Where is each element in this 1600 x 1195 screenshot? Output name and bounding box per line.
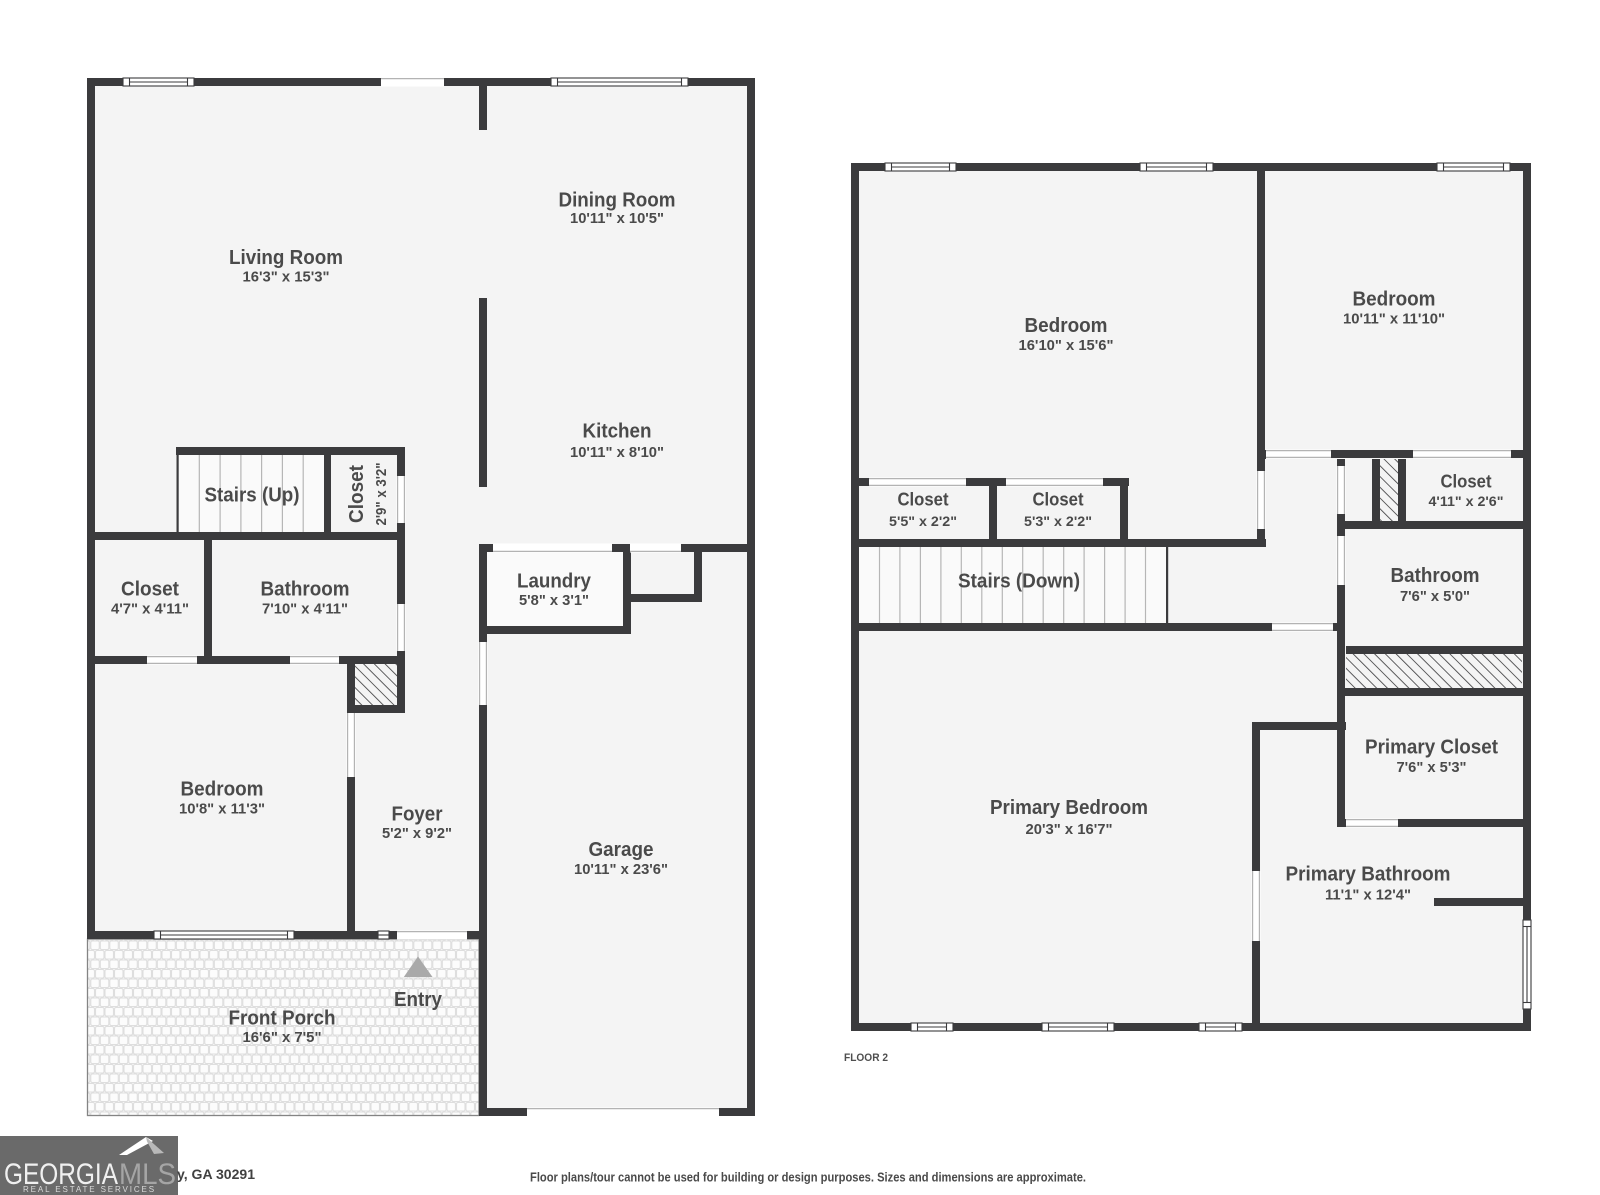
svg-text:Primary Closet: Primary Closet — [1365, 736, 1498, 759]
svg-text:Living Room: Living Room — [229, 246, 343, 269]
svg-text:Primary Bedroom: Primary Bedroom — [990, 796, 1148, 819]
svg-text:Garage: Garage — [589, 838, 654, 861]
svg-text:y, GA 30291: y, GA 30291 — [177, 1166, 255, 1182]
svg-text:16'6" x 7'5": 16'6" x 7'5" — [243, 1030, 322, 1046]
svg-text:Front Porch: Front Porch — [229, 1007, 336, 1030]
svg-text:16'10" x 15'6": 16'10" x 15'6" — [1019, 338, 1114, 354]
svg-text:REAL ESTATE SERVICES: REAL ESTATE SERVICES — [23, 1185, 156, 1194]
svg-text:5'2" x 9'2": 5'2" x 9'2" — [382, 826, 452, 842]
svg-text:10'11" x 11'10": 10'11" x 11'10" — [1343, 312, 1445, 328]
svg-text:Floor plans/tour cannot be use: Floor plans/tour cannot be used for buil… — [530, 1170, 1086, 1185]
svg-text:7'6" x 5'3": 7'6" x 5'3" — [1397, 760, 1467, 776]
svg-text:Bedroom: Bedroom — [1353, 288, 1436, 311]
svg-text:11'1" x 12'4": 11'1" x 12'4" — [1325, 888, 1411, 904]
svg-text:Bathroom: Bathroom — [1391, 564, 1480, 587]
svg-text:5'8" x 3'1": 5'8" x 3'1" — [519, 593, 589, 609]
svg-text:7'6" x 5'0": 7'6" x 5'0" — [1400, 589, 1470, 605]
svg-text:FLOOR 2: FLOOR 2 — [844, 1052, 888, 1064]
svg-text:Bedroom: Bedroom — [1025, 314, 1108, 337]
svg-text:16'3" x 15'3": 16'3" x 15'3" — [243, 270, 330, 286]
svg-text:Stairs (Down): Stairs (Down) — [958, 570, 1080, 593]
svg-text:Closet: Closet — [898, 490, 949, 510]
svg-text:Kitchen: Kitchen — [583, 420, 652, 443]
svg-text:Foyer: Foyer — [392, 803, 443, 826]
svg-text:5'3" x 2'2": 5'3" x 2'2" — [1024, 513, 1092, 529]
svg-text:Bathroom: Bathroom — [261, 578, 350, 601]
svg-text:10'8" x 11'3": 10'8" x 11'3" — [179, 802, 265, 818]
svg-text:2'9" x 3'2": 2'9" x 3'2" — [374, 463, 390, 526]
svg-text:Closet: Closet — [1441, 472, 1492, 492]
svg-text:20'3" x 16'7": 20'3" x 16'7" — [1026, 822, 1113, 838]
svg-text:Laundry: Laundry — [517, 570, 592, 593]
svg-text:4'11" x 2'6": 4'11" x 2'6" — [1429, 493, 1504, 509]
svg-text:Primary Bathroom: Primary Bathroom — [1286, 863, 1451, 886]
svg-text:Dining Room: Dining Room — [559, 189, 676, 212]
svg-text:4'7" x 4'11": 4'7" x 4'11" — [111, 602, 189, 618]
svg-text:10'11" x 8'10": 10'11" x 8'10" — [570, 445, 664, 461]
svg-text:10'11" x 10'5": 10'11" x 10'5" — [570, 211, 664, 227]
svg-text:Stairs (Up): Stairs (Up) — [205, 484, 300, 507]
svg-text:7'10" x 4'11": 7'10" x 4'11" — [262, 602, 348, 618]
svg-text:Closet: Closet — [1033, 490, 1084, 510]
svg-text:5'5" x 2'2": 5'5" x 2'2" — [889, 513, 957, 529]
svg-text:10'11" x 23'6": 10'11" x 23'6" — [574, 862, 668, 878]
svg-text:Closet: Closet — [345, 465, 368, 523]
svg-text:Bedroom: Bedroom — [181, 778, 264, 801]
svg-text:Entry: Entry — [394, 988, 443, 1011]
svg-text:Closet: Closet — [121, 578, 179, 601]
